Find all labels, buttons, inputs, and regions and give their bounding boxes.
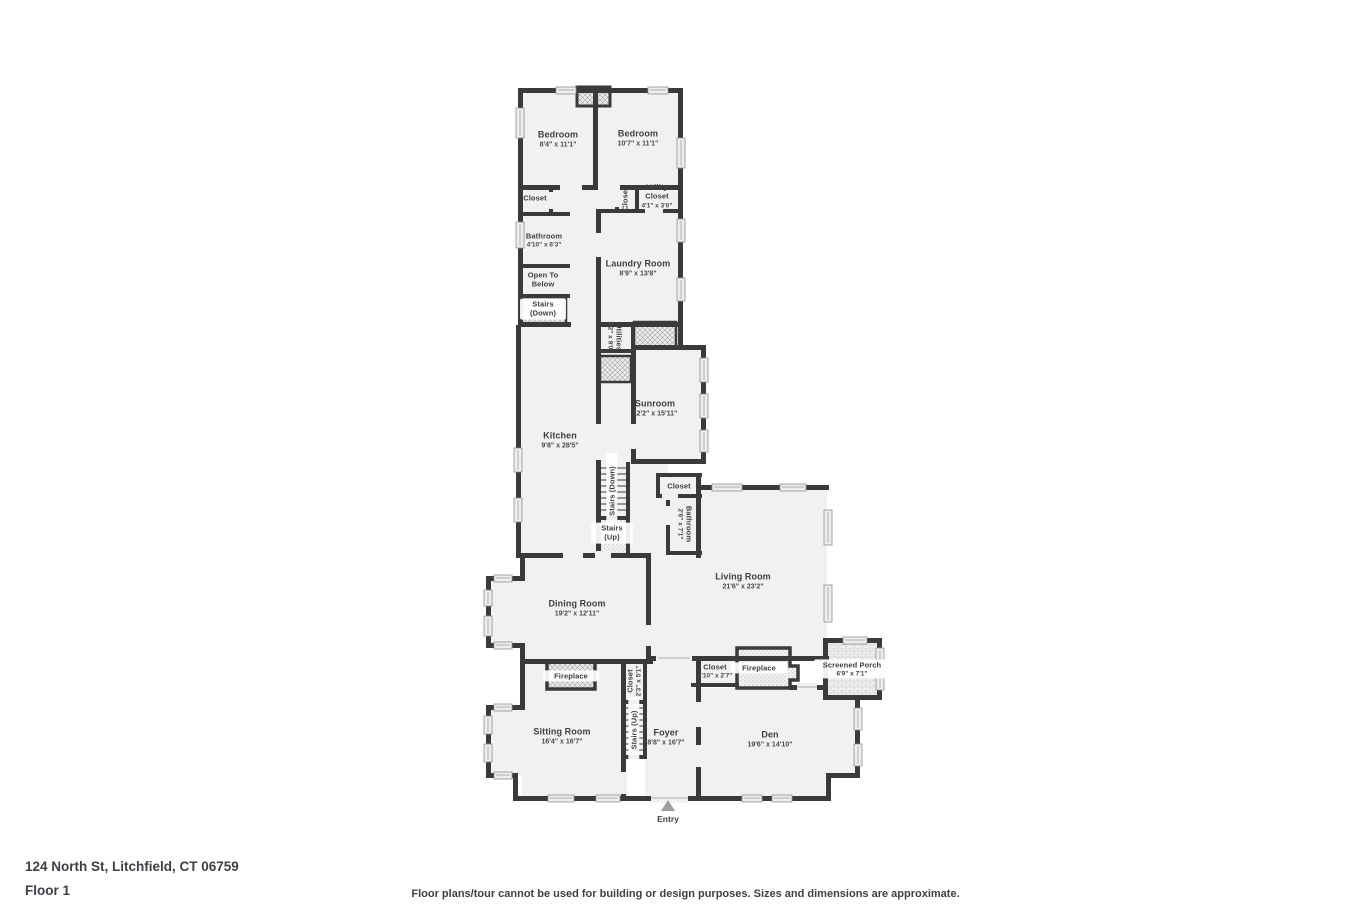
stairs-up-hatch xyxy=(599,519,627,554)
entry-label: Entry xyxy=(657,814,679,824)
fireplace-sitting xyxy=(547,662,595,689)
property-address: 124 North St, Litchfield, CT 06759 xyxy=(25,859,239,874)
floorplan-page: Bedroom 8'4" x 11'1" Bedroom 10'7" x 11'… xyxy=(0,0,1371,914)
stairs-down-hatch xyxy=(521,297,566,324)
utility-equipment xyxy=(600,356,631,382)
fireplace-den xyxy=(737,648,798,688)
floorplan-drawing xyxy=(0,0,1371,914)
disclaimer-text: Floor plans/tour cannot be used for buil… xyxy=(0,888,1371,900)
screened-porch-floor xyxy=(826,641,879,697)
